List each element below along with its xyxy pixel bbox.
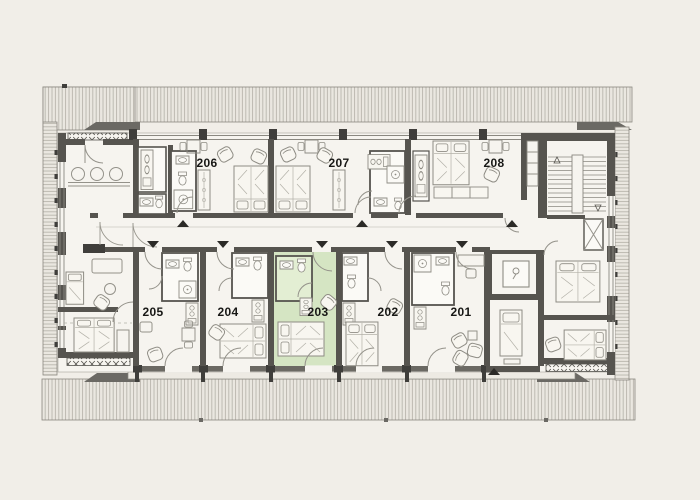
room-203-area[interactable] [274,252,336,366]
room-206-area[interactable] [173,139,268,215]
floor-plan-canvas: 206 207 208 205 204 203 202 201 [0,0,700,500]
floor-plan-page: 206 207 208 205 204 203 202 201 [0,0,700,500]
room-207-area[interactable] [274,139,366,215]
room-208-area[interactable] [411,139,521,215]
room-204-area[interactable] [206,252,268,366]
elevator [490,252,538,296]
room-201-area[interactable] [410,252,484,366]
room-202-area[interactable] [342,252,404,366]
roof-band-left [43,122,60,375]
room-205-area[interactable] [139,252,200,366]
room-hotspots [139,139,521,366]
